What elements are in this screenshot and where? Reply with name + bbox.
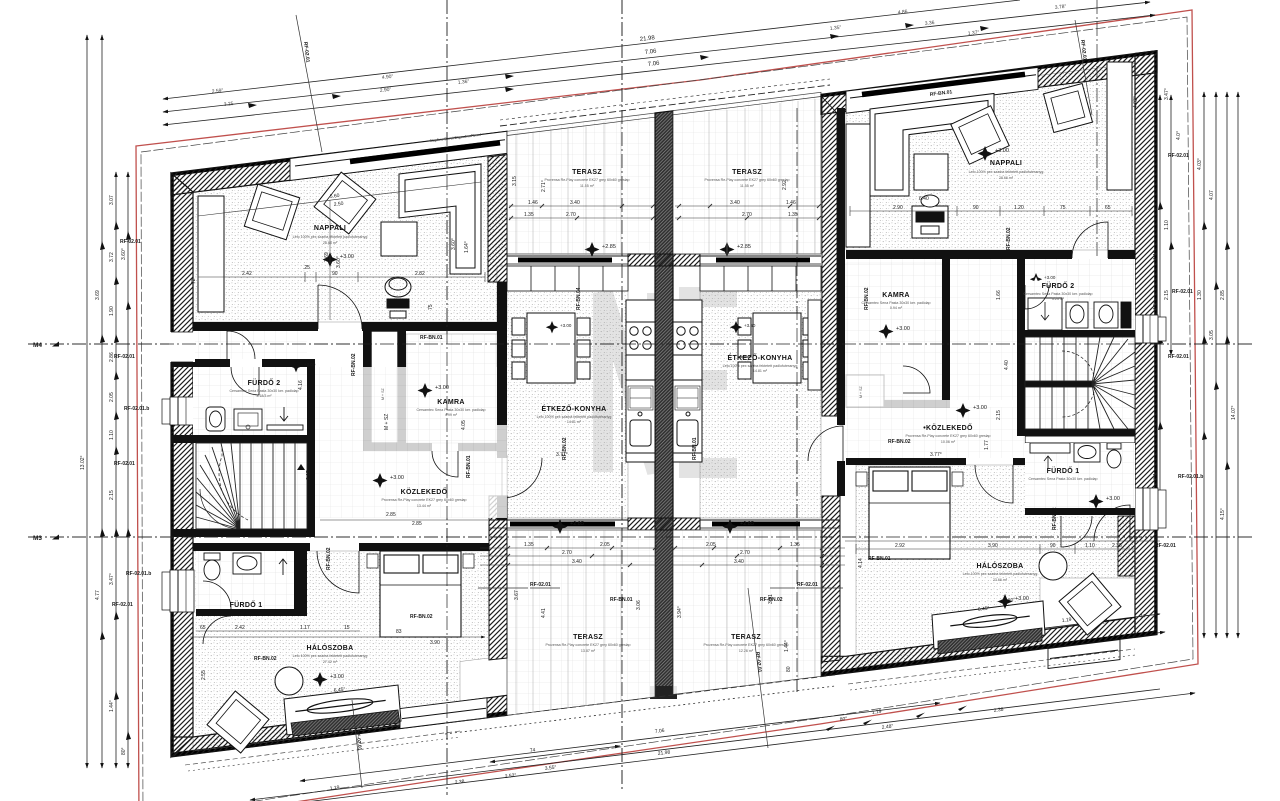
svg-text:TERASZ: TERASZ xyxy=(732,169,762,176)
svg-text:1.10: 1.10 xyxy=(1085,543,1095,549)
svg-text:3.40: 3.40 xyxy=(572,559,582,565)
svg-text:RF-BN.04: RF-BN.04 xyxy=(576,287,582,310)
svg-text:Lefo 100% pex szarba fektetett: Lefo 100% pex szarba fektetett padlofute… xyxy=(969,170,1044,174)
svg-text:3.47°: 3.47° xyxy=(1164,88,1170,100)
svg-text:4.40: 4.40 xyxy=(1004,360,1010,370)
svg-text:RF-BN.01: RF-BN.01 xyxy=(420,335,443,341)
svg-text:TERASZ: TERASZ xyxy=(731,634,761,641)
svg-text:2.71°: 2.71° xyxy=(541,180,547,192)
svg-text:14.81 m²: 14.81 m² xyxy=(753,369,768,373)
svg-text:13.87 m²: 13.87 m² xyxy=(581,649,596,653)
svg-text:ÉTKEZŐ-KONYHA: ÉTKEZŐ-KONYHA xyxy=(542,404,607,413)
svg-text:Provensa Re-Play concrete EK27: Provensa Re-Play concrete EK27 grey 60x6… xyxy=(544,178,629,182)
svg-text:15: 15 xyxy=(344,625,350,631)
svg-text:+3.00: +3.00 xyxy=(340,254,354,260)
svg-text:+3.00: +3.00 xyxy=(560,323,572,328)
svg-text:3.23 m²: 3.23 m² xyxy=(1052,297,1065,301)
svg-text:Provensa Re-Play concrete EK27: Provensa Re-Play concrete EK27 grey 60x6… xyxy=(703,643,788,647)
svg-text:3.40: 3.40 xyxy=(734,559,744,565)
svg-text:RF-02.01: RF-02.01 xyxy=(1168,354,1189,360)
svg-text:3.77°: 3.77° xyxy=(930,452,942,458)
svg-text:3.07: 3.07 xyxy=(109,195,115,205)
svg-text:Cersamtec Sena Pasta 30x30 ker: Cersamtec Sena Pasta 30x30 ker. padlolap xyxy=(416,408,485,412)
svg-text:28.66 m²: 28.66 m² xyxy=(999,176,1014,180)
svg-text:13.02°: 13.02° xyxy=(80,455,86,470)
svg-text:KAMRA: KAMRA xyxy=(882,292,910,299)
svg-text:RF-02.01: RF-02.01 xyxy=(114,354,135,360)
svg-text:1.44°: 1.44° xyxy=(109,700,115,712)
svg-text:4.15°: 4.15° xyxy=(1220,508,1226,520)
svg-text:RF-BN.01: RF-BN.01 xyxy=(868,556,891,562)
svg-text:3.25: 3.25 xyxy=(224,101,235,108)
svg-text:11.55 m²: 11.55 m² xyxy=(740,184,755,188)
svg-text:Lefo 100% pex szarba fektetett: Lefo 100% pex szarba fektetett padlofute… xyxy=(723,364,798,368)
svg-text:12.26 m²: 12.26 m² xyxy=(739,649,754,653)
svg-text:2.38: 2.38 xyxy=(455,779,466,786)
svg-text:Provensa Re-Play concrete EK27: Provensa Re-Play concrete EK27 grey 60x6… xyxy=(545,643,630,647)
svg-text:13.44 m²: 13.44 m² xyxy=(417,504,432,508)
svg-text:90: 90 xyxy=(973,205,979,211)
svg-text:23.66 m²: 23.66 m² xyxy=(993,578,1008,582)
svg-text:2.42: 2.42 xyxy=(235,625,245,631)
svg-text:4.41: 4.41 xyxy=(541,608,547,618)
svg-text:2.85: 2.85 xyxy=(412,521,422,527)
svg-text:M + SZ: M + SZ xyxy=(384,414,390,430)
svg-text:3.05: 3.05 xyxy=(1209,330,1215,340)
svg-text:1.19: 1.19 xyxy=(1062,617,1073,624)
svg-text:+3.00: +3.00 xyxy=(1015,596,1029,602)
svg-text:RF-BN.01: RF-BN.01 xyxy=(466,455,472,478)
svg-text:83: 83 xyxy=(396,629,402,635)
svg-text:+3.00: +3.00 xyxy=(973,405,987,411)
svg-text:RF-BN.02: RF-BN.02 xyxy=(562,437,568,460)
svg-text:ÉTKEZŐ-KONYHA: ÉTKEZŐ-KONYHA xyxy=(728,353,793,362)
svg-text:RF-BN.02: RF-BN.02 xyxy=(760,597,783,603)
svg-text:RF-02.01: RF-02.01 xyxy=(797,582,818,588)
svg-text:1.46: 1.46 xyxy=(786,200,796,206)
svg-text:+2.85: +2.85 xyxy=(737,244,751,250)
svg-text:3.60°: 3.60° xyxy=(336,256,342,268)
svg-text:75: 75 xyxy=(1060,205,1066,211)
svg-text:+3.00: +3.00 xyxy=(995,148,1009,154)
svg-text:3.67: 3.67 xyxy=(514,590,520,600)
svg-text:3.40: 3.40 xyxy=(730,200,740,206)
svg-text:0.94 m²: 0.94 m² xyxy=(890,306,903,310)
svg-text:5.60: 5.60 xyxy=(330,193,341,200)
svg-text:1.17: 1.17 xyxy=(300,625,310,631)
svg-text:RF-02.01.b: RF-02.01.b xyxy=(124,406,149,412)
svg-text:3.90: 3.90 xyxy=(988,543,998,549)
svg-text:2.42: 2.42 xyxy=(242,271,252,277)
svg-text:•KÖZLEKEDŐ: •KÖZLEKEDŐ xyxy=(923,423,973,432)
svg-text:+3.00: +3.00 xyxy=(896,326,910,332)
svg-text:Lefo 100% pex szarba fektetett: Lefo 100% pex szarba fektetett padlofute… xyxy=(963,572,1038,576)
svg-text:1.44°: 1.44° xyxy=(784,640,790,652)
svg-text:1.35: 1.35 xyxy=(788,212,798,218)
svg-text:1.10: 1.10 xyxy=(1164,220,1170,230)
svg-text:RF-02.01.b: RF-02.01.b xyxy=(126,571,151,577)
svg-text:2.85: 2.85 xyxy=(1220,290,1226,300)
svg-text:RF-BN.02: RF-BN.02 xyxy=(326,547,332,570)
svg-text:Lefo 100% pex szarba fektetett: Lefo 100% pex szarba fektetett padlofute… xyxy=(293,654,368,658)
svg-text:74: 74 xyxy=(530,747,536,754)
svg-text:3.94°: 3.94° xyxy=(677,606,683,618)
svg-text:Cersamtec Sena Pasta 30x30 ker: Cersamtec Sena Pasta 30x30 ker. padlolap xyxy=(1023,292,1092,296)
svg-text:1.30: 1.30 xyxy=(1197,290,1203,300)
svg-text:1.35: 1.35 xyxy=(524,542,534,548)
svg-text:1.46: 1.46 xyxy=(528,200,538,206)
svg-text:RF-BN.02: RF-BN.02 xyxy=(1052,507,1058,530)
svg-text:3.47°: 3.47° xyxy=(109,573,115,585)
svg-text:3.36: 3.36 xyxy=(925,20,936,27)
svg-text:RF-BN.01: RF-BN.01 xyxy=(692,437,698,460)
svg-text:+3.00: +3.00 xyxy=(304,362,316,367)
svg-text:2.70: 2.70 xyxy=(740,550,750,556)
svg-text:2.85: 2.85 xyxy=(386,512,396,518)
svg-text:+2.85: +2.85 xyxy=(570,521,584,527)
svg-text:1.19: 1.19 xyxy=(330,785,341,792)
svg-text:2.15: 2.15 xyxy=(306,470,312,480)
svg-text:3.06: 3.06 xyxy=(636,600,642,610)
svg-text:4.86: 4.86 xyxy=(898,9,909,16)
svg-text:RF-02.01: RF-02.01 xyxy=(1172,289,1193,295)
svg-text:65: 65 xyxy=(200,625,206,631)
svg-text:M + SZ: M + SZ xyxy=(381,388,385,400)
svg-text:2.70: 2.70 xyxy=(562,550,572,556)
svg-text:80: 80 xyxy=(786,666,792,672)
svg-text:2.50: 2.50 xyxy=(334,201,345,208)
svg-text:3.90: 3.90 xyxy=(430,640,440,646)
svg-text:1.77: 1.77 xyxy=(984,440,990,450)
svg-text:3.60°: 3.60° xyxy=(451,238,457,250)
svg-text:2.05: 2.05 xyxy=(706,542,716,548)
svg-text:RF-BN.02: RF-BN.02 xyxy=(410,614,433,620)
svg-text:M + SZ: M + SZ xyxy=(859,386,863,398)
svg-text:FÜRDŐ 1: FÜRDŐ 1 xyxy=(1047,466,1080,475)
svg-text:4.14: 4.14 xyxy=(858,558,864,568)
svg-text:2.05: 2.05 xyxy=(600,542,610,548)
svg-text:Cersamtec Sena Pasta 30x30 ker: Cersamtec Sena Pasta 30x30 ker. padlolap xyxy=(229,389,298,393)
svg-text:3.69: 3.69 xyxy=(324,252,330,262)
svg-text:FÜRDŐ 2: FÜRDŐ 2 xyxy=(248,378,281,387)
svg-text:2.92: 2.92 xyxy=(895,543,905,549)
svg-text:RF-02.01: RF-02.01 xyxy=(1155,543,1176,549)
svg-text:1.35: 1.35 xyxy=(524,212,534,218)
svg-text:.25: .25 xyxy=(303,265,310,271)
svg-text:2.15: 2.15 xyxy=(1164,290,1170,300)
svg-text:2.15: 2.15 xyxy=(996,410,1002,420)
svg-text:80°: 80° xyxy=(121,747,127,755)
svg-text:RF-02.01: RF-02.01 xyxy=(112,602,133,608)
svg-text:+3.50: +3.50 xyxy=(744,323,756,328)
svg-text:RF-02.01: RF-02.01 xyxy=(530,582,551,588)
svg-text:HÁLÓSZOBA: HÁLÓSZOBA xyxy=(976,561,1023,570)
svg-text:28.66 m²: 28.66 m² xyxy=(323,241,338,245)
svg-text:2.82: 2.82 xyxy=(415,271,425,277)
svg-text:4.77: 4.77 xyxy=(95,590,101,600)
svg-text:2.35: 2.35 xyxy=(1112,543,1122,549)
svg-text:KÖZLEKEDŐ: KÖZLEKEDŐ xyxy=(401,487,448,496)
svg-text:M4: M4 xyxy=(33,342,42,349)
svg-text:FÜRDŐ 1: FÜRDŐ 1 xyxy=(230,600,263,609)
svg-text:11.55 m²: 11.55 m² xyxy=(580,184,595,188)
svg-text:2.70: 2.70 xyxy=(742,212,752,218)
svg-text:4.03°: 4.03° xyxy=(1197,158,1203,170)
svg-text:+3.00: +3.00 xyxy=(390,475,404,481)
svg-text:+3.00: +3.00 xyxy=(1044,275,1056,280)
svg-text:1.20: 1.20 xyxy=(1014,205,1024,211)
svg-text:NAPPALI: NAPPALI xyxy=(990,160,1022,167)
svg-text:RF-BN.02: RF-BN.02 xyxy=(254,656,277,662)
svg-text:3.69: 3.69 xyxy=(95,290,101,300)
svg-text:2.05: 2.05 xyxy=(109,392,115,402)
svg-text:3.15: 3.15 xyxy=(836,174,842,184)
svg-text:1.66: 1.66 xyxy=(996,290,1002,300)
svg-text:RF-02.01: RF-02.01 xyxy=(1168,153,1189,159)
svg-text:Cersamtec Sena Pasta 30x30 ker: Cersamtec Sena Pasta 30x30 ker. padlolap xyxy=(861,301,930,305)
svg-text:3.60°: 3.60° xyxy=(121,248,127,260)
svg-text:+3.00: +3.00 xyxy=(330,674,344,680)
svg-text:+2.85: +2.85 xyxy=(740,521,754,527)
svg-text:90: 90 xyxy=(332,271,338,277)
svg-text:+3.00: +3.00 xyxy=(1106,496,1120,502)
svg-text:3.15: 3.15 xyxy=(512,176,518,186)
svg-text:1.10: 1.10 xyxy=(109,430,115,440)
svg-text:2.70: 2.70 xyxy=(566,212,576,218)
svg-text:M3: M3 xyxy=(33,535,42,542)
svg-text:1.64°: 1.64° xyxy=(464,241,470,253)
svg-text:RF-BN.01: RF-BN.01 xyxy=(610,597,633,603)
svg-text:72: 72 xyxy=(191,278,197,284)
svg-text:TERASZ: TERASZ xyxy=(572,169,602,176)
svg-text:1.90: 1.90 xyxy=(109,306,115,316)
svg-text:4.07: 4.07 xyxy=(1209,190,1215,200)
svg-text:2.15: 2.15 xyxy=(109,490,115,500)
svg-text:RF-BN.02: RF-BN.02 xyxy=(351,353,357,376)
svg-text:Provensa Re-Play concrete EK27: Provensa Re-Play concrete EK27 grey 60x6… xyxy=(704,178,789,182)
svg-text:2.55: 2.55 xyxy=(201,670,207,680)
svg-text:HÁLÓSZOBA: HÁLÓSZOBA xyxy=(306,643,353,652)
svg-text:80°: 80° xyxy=(839,716,847,723)
svg-text:Lefo 100% pex szarba fektetett: Lefo 100% pex szarba fektetett padlofute… xyxy=(537,415,612,419)
svg-text:14.07°: 14.07° xyxy=(1231,405,1237,420)
svg-text:65: 65 xyxy=(1105,205,1111,211)
svg-text:TERASZ: TERASZ xyxy=(573,634,603,641)
svg-text:RF-BN.02: RF-BN.02 xyxy=(864,287,870,310)
svg-text:27.42 m²: 27.42 m² xyxy=(323,660,338,664)
svg-text:2.92: 2.92 xyxy=(782,180,788,190)
svg-text:RF-02.01: RF-02.01 xyxy=(114,461,135,467)
svg-text:RF-02.01: RF-02.01 xyxy=(120,239,141,245)
svg-text:Provensa Re-Play concrete EK27: Provensa Re-Play concrete EK27 grey 60x6… xyxy=(905,434,990,438)
svg-text:7.06: 7.06 xyxy=(655,728,666,735)
svg-text:3.72: 3.72 xyxy=(109,252,115,262)
svg-text:FÜRDŐ 2: FÜRDŐ 2 xyxy=(1042,281,1075,290)
svg-text:2.90: 2.90 xyxy=(893,205,903,211)
svg-text:4.05: 4.05 xyxy=(461,420,467,430)
svg-text:Provensa Re-Play concrete EK27: Provensa Re-Play concrete EK27 grey 60x6… xyxy=(381,498,466,502)
svg-text:Cersamtec Sena Pasta 30x30 ker: Cersamtec Sena Pasta 30x30 ker. padlolap xyxy=(1028,477,1097,481)
svg-text:14.81 m²: 14.81 m² xyxy=(567,420,582,424)
svg-text:90: 90 xyxy=(1050,543,1056,549)
svg-text:1.35: 1.35 xyxy=(790,542,800,548)
svg-text:3.40: 3.40 xyxy=(570,200,580,206)
svg-text:4.0°: 4.0° xyxy=(1176,131,1182,140)
svg-text:10.06 m²: 10.06 m² xyxy=(941,440,956,444)
svg-text:RF-02.01.b: RF-02.01.b xyxy=(1178,474,1203,480)
svg-text:6.40: 6.40 xyxy=(919,196,929,202)
svg-text:RF-BN.02: RF-BN.02 xyxy=(1006,227,1012,250)
svg-text:75: 75 xyxy=(428,304,434,310)
svg-text:3.18/3 m²: 3.18/3 m² xyxy=(256,394,272,398)
svg-text:RF-BN.02: RF-BN.02 xyxy=(888,439,911,445)
svg-text:4.16: 4.16 xyxy=(298,380,304,390)
svg-text:KAMRA: KAMRA xyxy=(437,399,465,406)
